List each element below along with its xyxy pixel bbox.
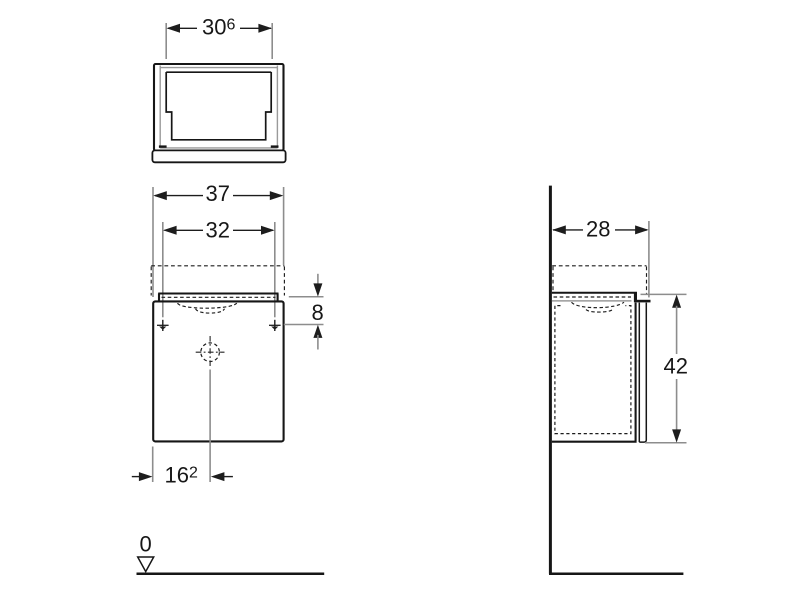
svg-text:8: 8 (312, 300, 324, 325)
svg-text:28: 28 (586, 217, 610, 242)
svg-text:37: 37 (206, 181, 230, 206)
svg-text:32: 32 (206, 217, 230, 242)
svg-text:42: 42 (664, 354, 688, 379)
svg-text:0: 0 (140, 532, 152, 557)
